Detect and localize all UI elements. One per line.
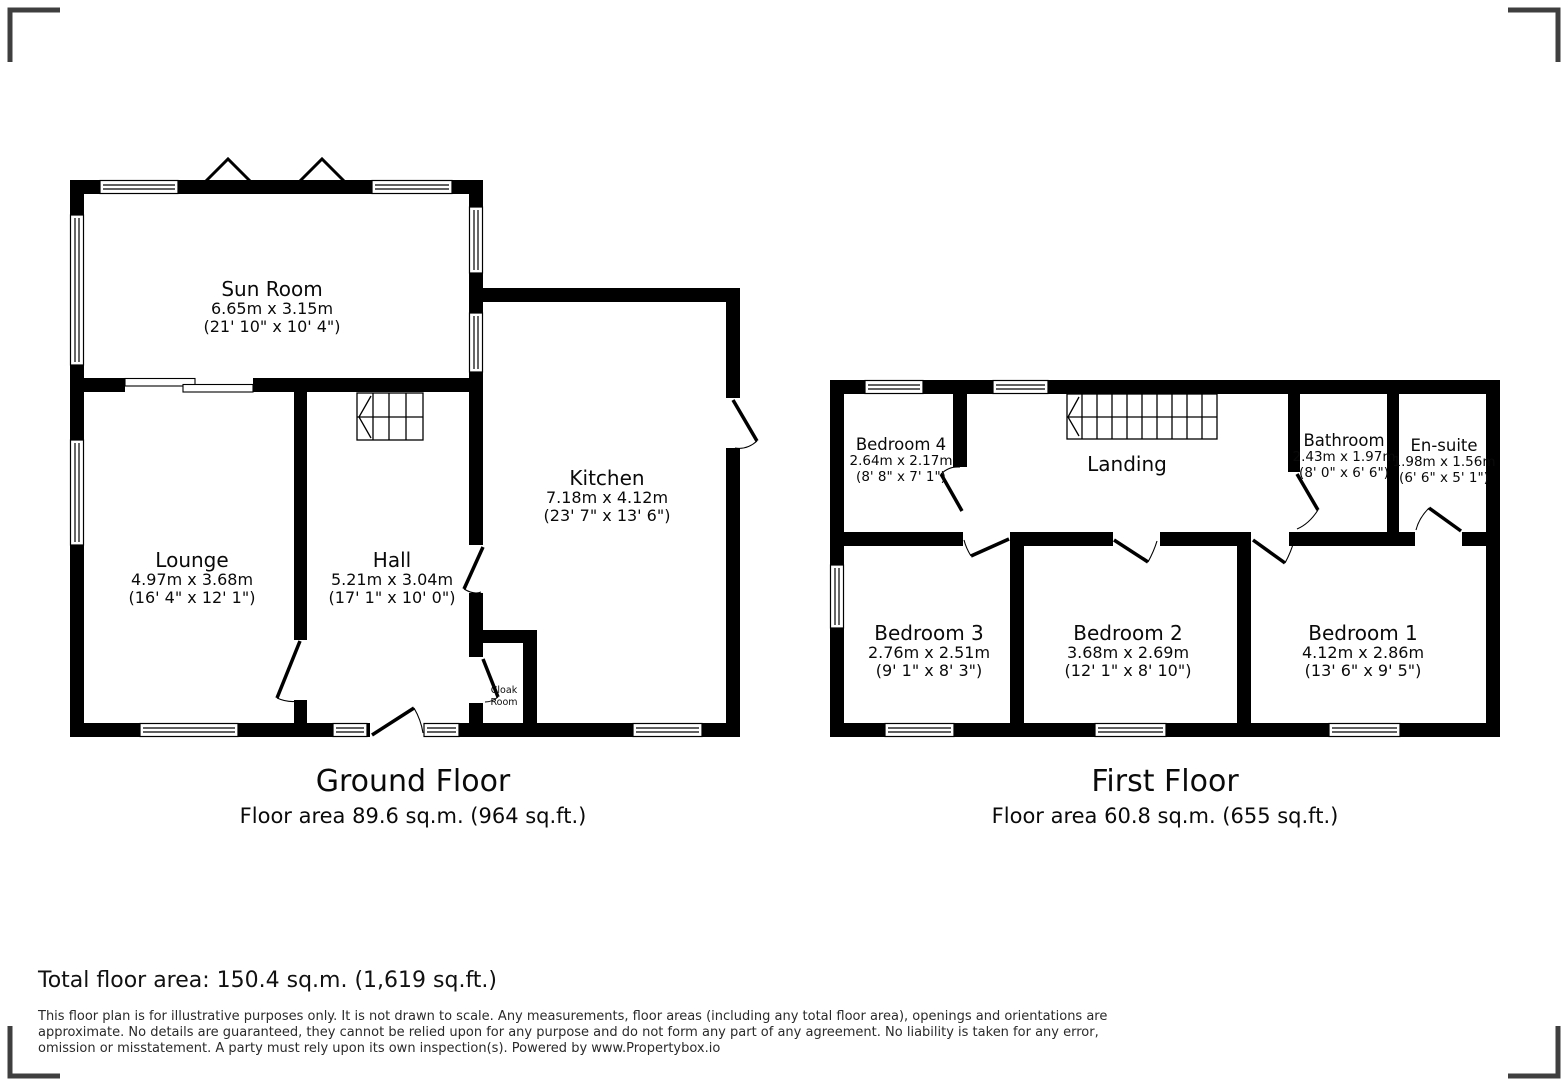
room-name-line2: Room bbox=[490, 697, 517, 709]
window bbox=[885, 724, 954, 737]
room-label-bedroom2: Bedroom 2 3.68m x 2.69m (12' 1" x 8' 10"… bbox=[1065, 622, 1192, 679]
window bbox=[831, 565, 844, 628]
room-dims-imperial: (17' 1" x 10' 0") bbox=[329, 589, 456, 607]
room-name: Bedroom 2 bbox=[1065, 622, 1192, 644]
room-label-bedroom3: Bedroom 3 2.76m x 2.51m (9' 1" x 8' 3") bbox=[868, 622, 990, 679]
room-dims-metric: 2.76m x 2.51m bbox=[868, 644, 990, 662]
room-dims-metric: 4.12m x 2.86m bbox=[1302, 644, 1424, 662]
room-name: Bathroom bbox=[1293, 432, 1396, 450]
door-bathroom bbox=[1297, 474, 1318, 529]
room-dims-imperial: (13' 6" x 9' 5") bbox=[1302, 662, 1424, 680]
room-dims-imperial: (16' 4" x 12' 1") bbox=[129, 589, 256, 607]
room-name: Kitchen bbox=[544, 467, 671, 489]
window bbox=[71, 440, 84, 545]
window bbox=[140, 724, 238, 737]
door-ensuite bbox=[1416, 508, 1461, 531]
room-name: Bedroom 1 bbox=[1302, 622, 1424, 644]
room-dims-imperial: (23' 7" x 13' 6") bbox=[544, 507, 671, 525]
room-label-cloak-room: Cloak Room bbox=[490, 685, 517, 709]
room-dims-imperial: (8' 0" x 6' 6") bbox=[1293, 466, 1396, 482]
room-label-bathroom: Bathroom 2.43m x 1.97m (8' 0" x 6' 6") bbox=[1293, 432, 1396, 481]
window bbox=[1095, 724, 1166, 737]
disclaimer-line: omission or misstatement. A party must r… bbox=[38, 1041, 1107, 1057]
disclaimer-line: approximate. No details are guaranteed, … bbox=[38, 1025, 1107, 1041]
disclaimer-line: This floor plan is for illustrative purp… bbox=[38, 1009, 1107, 1025]
window bbox=[100, 181, 178, 194]
total-floor-area: Total floor area: 150.4 sq.m. (1,619 sq.… bbox=[38, 968, 497, 994]
room-dims-metric: 2.43m x 1.97m bbox=[1293, 450, 1396, 466]
window bbox=[633, 724, 702, 737]
room-dims-metric: 6.65m x 3.15m bbox=[203, 300, 340, 318]
window bbox=[424, 724, 459, 737]
room-dims-metric: 1.98m x 1.56m bbox=[1393, 455, 1496, 471]
first-floor-stairs bbox=[1067, 394, 1217, 439]
first-floor-title: First Floor bbox=[1091, 766, 1238, 798]
window bbox=[470, 207, 483, 273]
window bbox=[372, 181, 452, 194]
room-dims-imperial: (21' 10" x 10' 4") bbox=[203, 318, 340, 336]
room-label-ensuite: En-suite 1.98m x 1.56m (6' 6" x 5' 1") bbox=[1393, 437, 1496, 486]
ground-floor-title: Ground Floor bbox=[316, 766, 511, 798]
room-name-line1: Cloak bbox=[490, 685, 517, 697]
first-floor-area: Floor area 60.8 sq.m. (655 sq.ft.) bbox=[992, 805, 1339, 828]
room-label-lounge: Lounge 4.97m x 3.68m (16' 4" x 12' 1") bbox=[129, 549, 256, 606]
corner-mark-bottom-right bbox=[1508, 1026, 1558, 1076]
room-dims-imperial: (12' 1" x 8' 10") bbox=[1065, 662, 1192, 680]
room-label-sun-room: Sun Room 6.65m x 3.15m (21' 10" x 10' 4"… bbox=[203, 278, 340, 335]
window bbox=[993, 381, 1048, 394]
room-label-bedroom1: Bedroom 1 4.12m x 2.86m (13' 6" x 9' 5") bbox=[1302, 622, 1424, 679]
floorplan-linework bbox=[0, 0, 1568, 1088]
room-label-landing: Landing bbox=[1087, 453, 1167, 475]
room-name: Sun Room bbox=[203, 278, 340, 300]
room-name: Lounge bbox=[129, 549, 256, 571]
room-dims-imperial: (6' 6" x 5' 1") bbox=[1393, 471, 1496, 487]
disclaimer-text: This floor plan is for illustrative purp… bbox=[38, 1009, 1107, 1057]
room-name: En-suite bbox=[1393, 437, 1496, 455]
room-name: Bedroom 3 bbox=[868, 622, 990, 644]
sun-room-roof-marks bbox=[204, 159, 346, 183]
room-name: Bedroom 4 bbox=[850, 436, 953, 454]
corner-mark-top-left bbox=[10, 10, 60, 62]
door-bedroom2 bbox=[1114, 540, 1157, 562]
window bbox=[865, 381, 923, 394]
ground-floor-stairs bbox=[357, 393, 423, 440]
room-label-hall: Hall 5.21m x 3.04m (17' 1" x 10' 0") bbox=[329, 549, 456, 606]
room-dims-imperial: (8' 8" x 7' 1") bbox=[850, 470, 953, 486]
ground-floor-walls bbox=[70, 180, 740, 737]
room-label-kitchen: Kitchen 7.18m x 4.12m (23' 7" x 13' 6") bbox=[544, 467, 671, 524]
room-label-bedroom4: Bedroom 4 2.64m x 2.17m (8' 8" x 7' 1") bbox=[850, 436, 953, 485]
room-dims-metric: 3.68m x 2.69m bbox=[1065, 644, 1192, 662]
door-bedroom1 bbox=[1253, 540, 1294, 563]
room-name: Hall bbox=[329, 549, 456, 571]
door-bedroom3 bbox=[964, 539, 1009, 556]
ground-floor-windows bbox=[71, 181, 703, 737]
window bbox=[333, 724, 367, 737]
corner-mark-top-right bbox=[1508, 10, 1558, 62]
window bbox=[1329, 724, 1400, 737]
window bbox=[71, 215, 84, 365]
window bbox=[470, 313, 483, 372]
room-dims-metric: 7.18m x 4.12m bbox=[544, 489, 671, 507]
room-dims-metric: 4.97m x 3.68m bbox=[129, 571, 256, 589]
room-dims-metric: 5.21m x 3.04m bbox=[329, 571, 456, 589]
floorplan-page: Sun Room 6.65m x 3.15m (21' 10" x 10' 4"… bbox=[0, 0, 1568, 1088]
ground-floor-area: Floor area 89.6 sq.m. (964 sq.ft.) bbox=[240, 805, 587, 828]
room-dims-imperial: (9' 1" x 8' 3") bbox=[868, 662, 990, 680]
first-floor-walls bbox=[830, 380, 1500, 737]
room-dims-metric: 2.64m x 2.17m bbox=[850, 454, 953, 470]
room-name: Landing bbox=[1087, 453, 1167, 475]
